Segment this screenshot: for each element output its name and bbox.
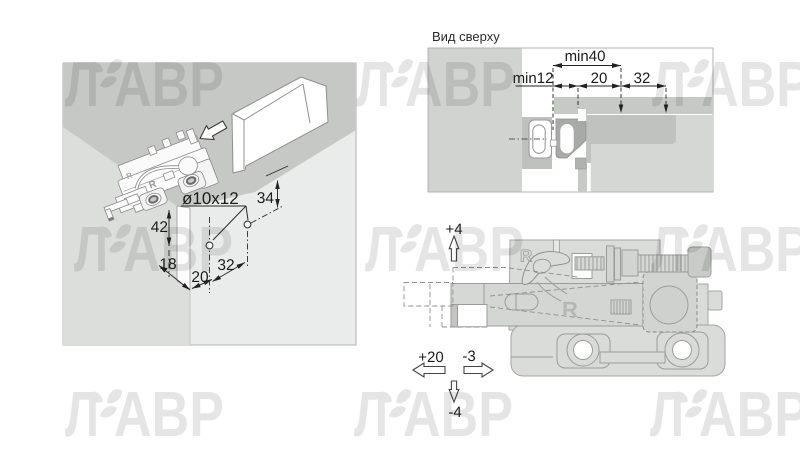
svg-text:ø10x12: ø10x12 (182, 189, 239, 208)
svg-text:32: 32 (634, 70, 651, 87)
svg-text:34: 34 (257, 190, 275, 207)
svg-text:min40: min40 (565, 48, 606, 65)
svg-text:+20: +20 (418, 349, 443, 366)
svg-text:Вид сверху: Вид сверху (432, 29, 500, 44)
svg-text:-3: -3 (462, 348, 475, 365)
svg-text:R: R (562, 297, 578, 322)
svg-text:min12: min12 (513, 70, 554, 87)
svg-text:20: 20 (591, 70, 608, 87)
